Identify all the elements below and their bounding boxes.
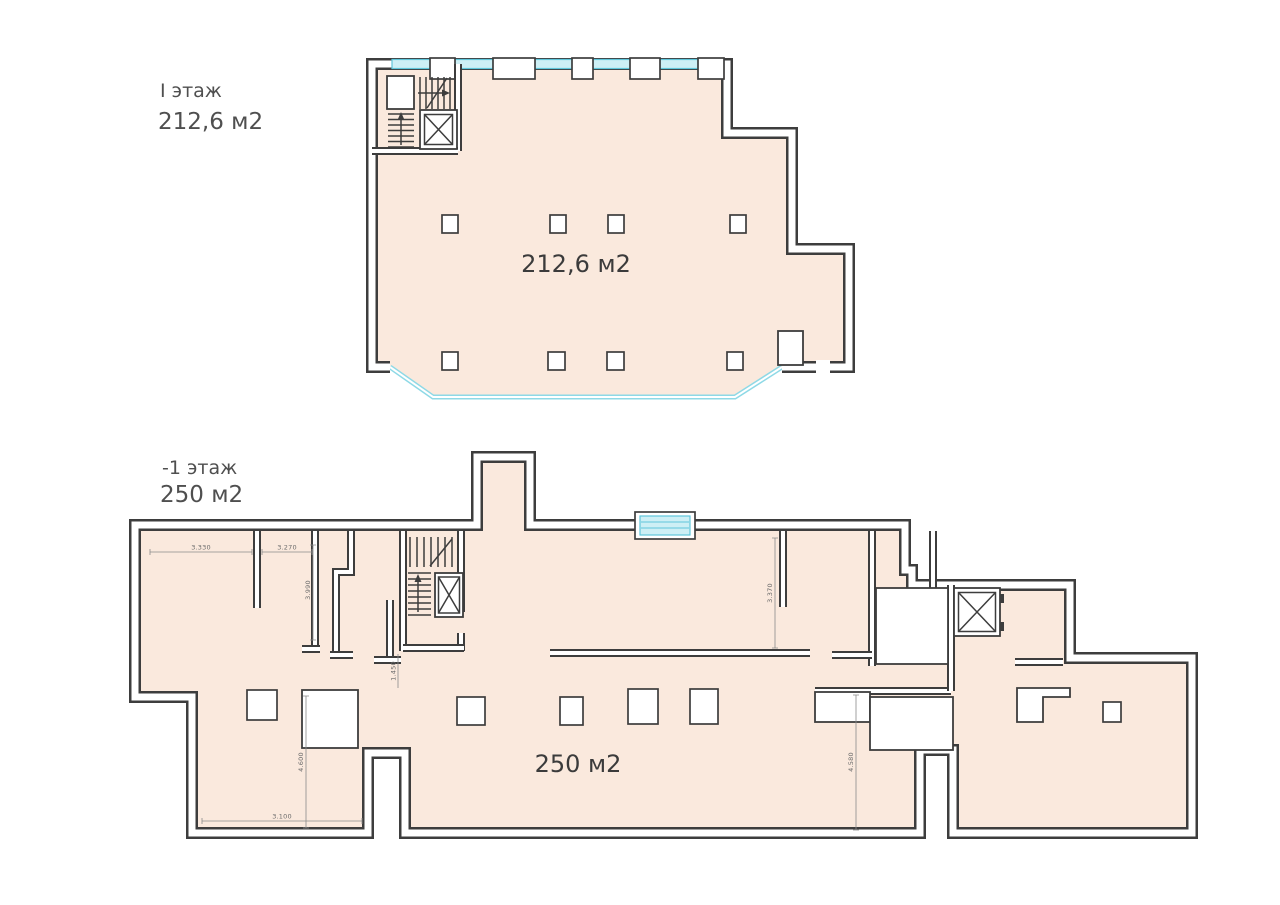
dimension-label: 4.600 <box>297 752 305 772</box>
window-pier <box>493 58 535 79</box>
column <box>548 352 565 370</box>
elevator-icon <box>954 588 1004 636</box>
floor-minus1-window <box>635 512 695 539</box>
dimension-label: 3.270 <box>277 544 297 552</box>
column <box>442 352 458 370</box>
dimension-label: 1.450 <box>390 661 398 681</box>
column <box>727 352 743 370</box>
column <box>247 690 277 720</box>
floor-plan-minus-1: -1 этаж 250 м2 <box>135 457 1192 833</box>
window <box>640 516 690 535</box>
floor-minus1-area-label: 250 м2 <box>535 750 622 778</box>
floor-plan-1: I этаж 212,6 м2 <box>158 58 849 397</box>
window <box>392 60 430 69</box>
floor-minus1-caption-area: 250 м2 <box>160 482 243 508</box>
elevator-icon <box>435 573 463 617</box>
dimension-label: 3.990 <box>304 580 312 600</box>
window-pier <box>698 58 724 79</box>
dimension-label: 3.100 <box>272 813 292 821</box>
elevator-icon <box>420 110 457 149</box>
elevator-door-jamb <box>1000 622 1004 631</box>
utility-room <box>778 331 803 365</box>
dimension-label: 4.580 <box>847 752 855 772</box>
wall-niche <box>815 692 870 722</box>
shaft-void <box>876 588 948 664</box>
floor1-caption-name: I этаж <box>160 80 222 102</box>
column <box>690 689 718 724</box>
stair-room <box>387 76 414 109</box>
column <box>550 215 566 233</box>
column <box>1103 702 1121 722</box>
window <box>535 60 572 69</box>
column <box>442 215 458 233</box>
column <box>457 697 485 725</box>
column <box>628 689 658 724</box>
column <box>560 697 583 725</box>
window-pier <box>630 58 660 79</box>
column <box>607 352 624 370</box>
shaft-void <box>870 697 953 750</box>
window <box>593 60 630 69</box>
shaft-void <box>302 690 358 748</box>
floor-minus1-caption-name: -1 этаж <box>162 457 237 479</box>
column <box>608 215 624 233</box>
door-opening <box>816 360 830 374</box>
floor1-area-label: 212,6 м2 <box>521 250 631 278</box>
dimension-label: 3.330 <box>191 544 211 552</box>
floor-plan-page: I этаж 212,6 м2 <box>0 0 1280 905</box>
dimension-label: 3.370 <box>766 583 774 603</box>
floor-plans-drawing: I этаж 212,6 м2 <box>0 0 1280 905</box>
column <box>730 215 746 233</box>
window <box>660 60 698 69</box>
window-pier <box>572 58 593 79</box>
window-pier <box>430 58 455 79</box>
elevator-door-jamb <box>1000 594 1004 603</box>
floor1-caption-area: 212,6 м2 <box>158 109 263 135</box>
